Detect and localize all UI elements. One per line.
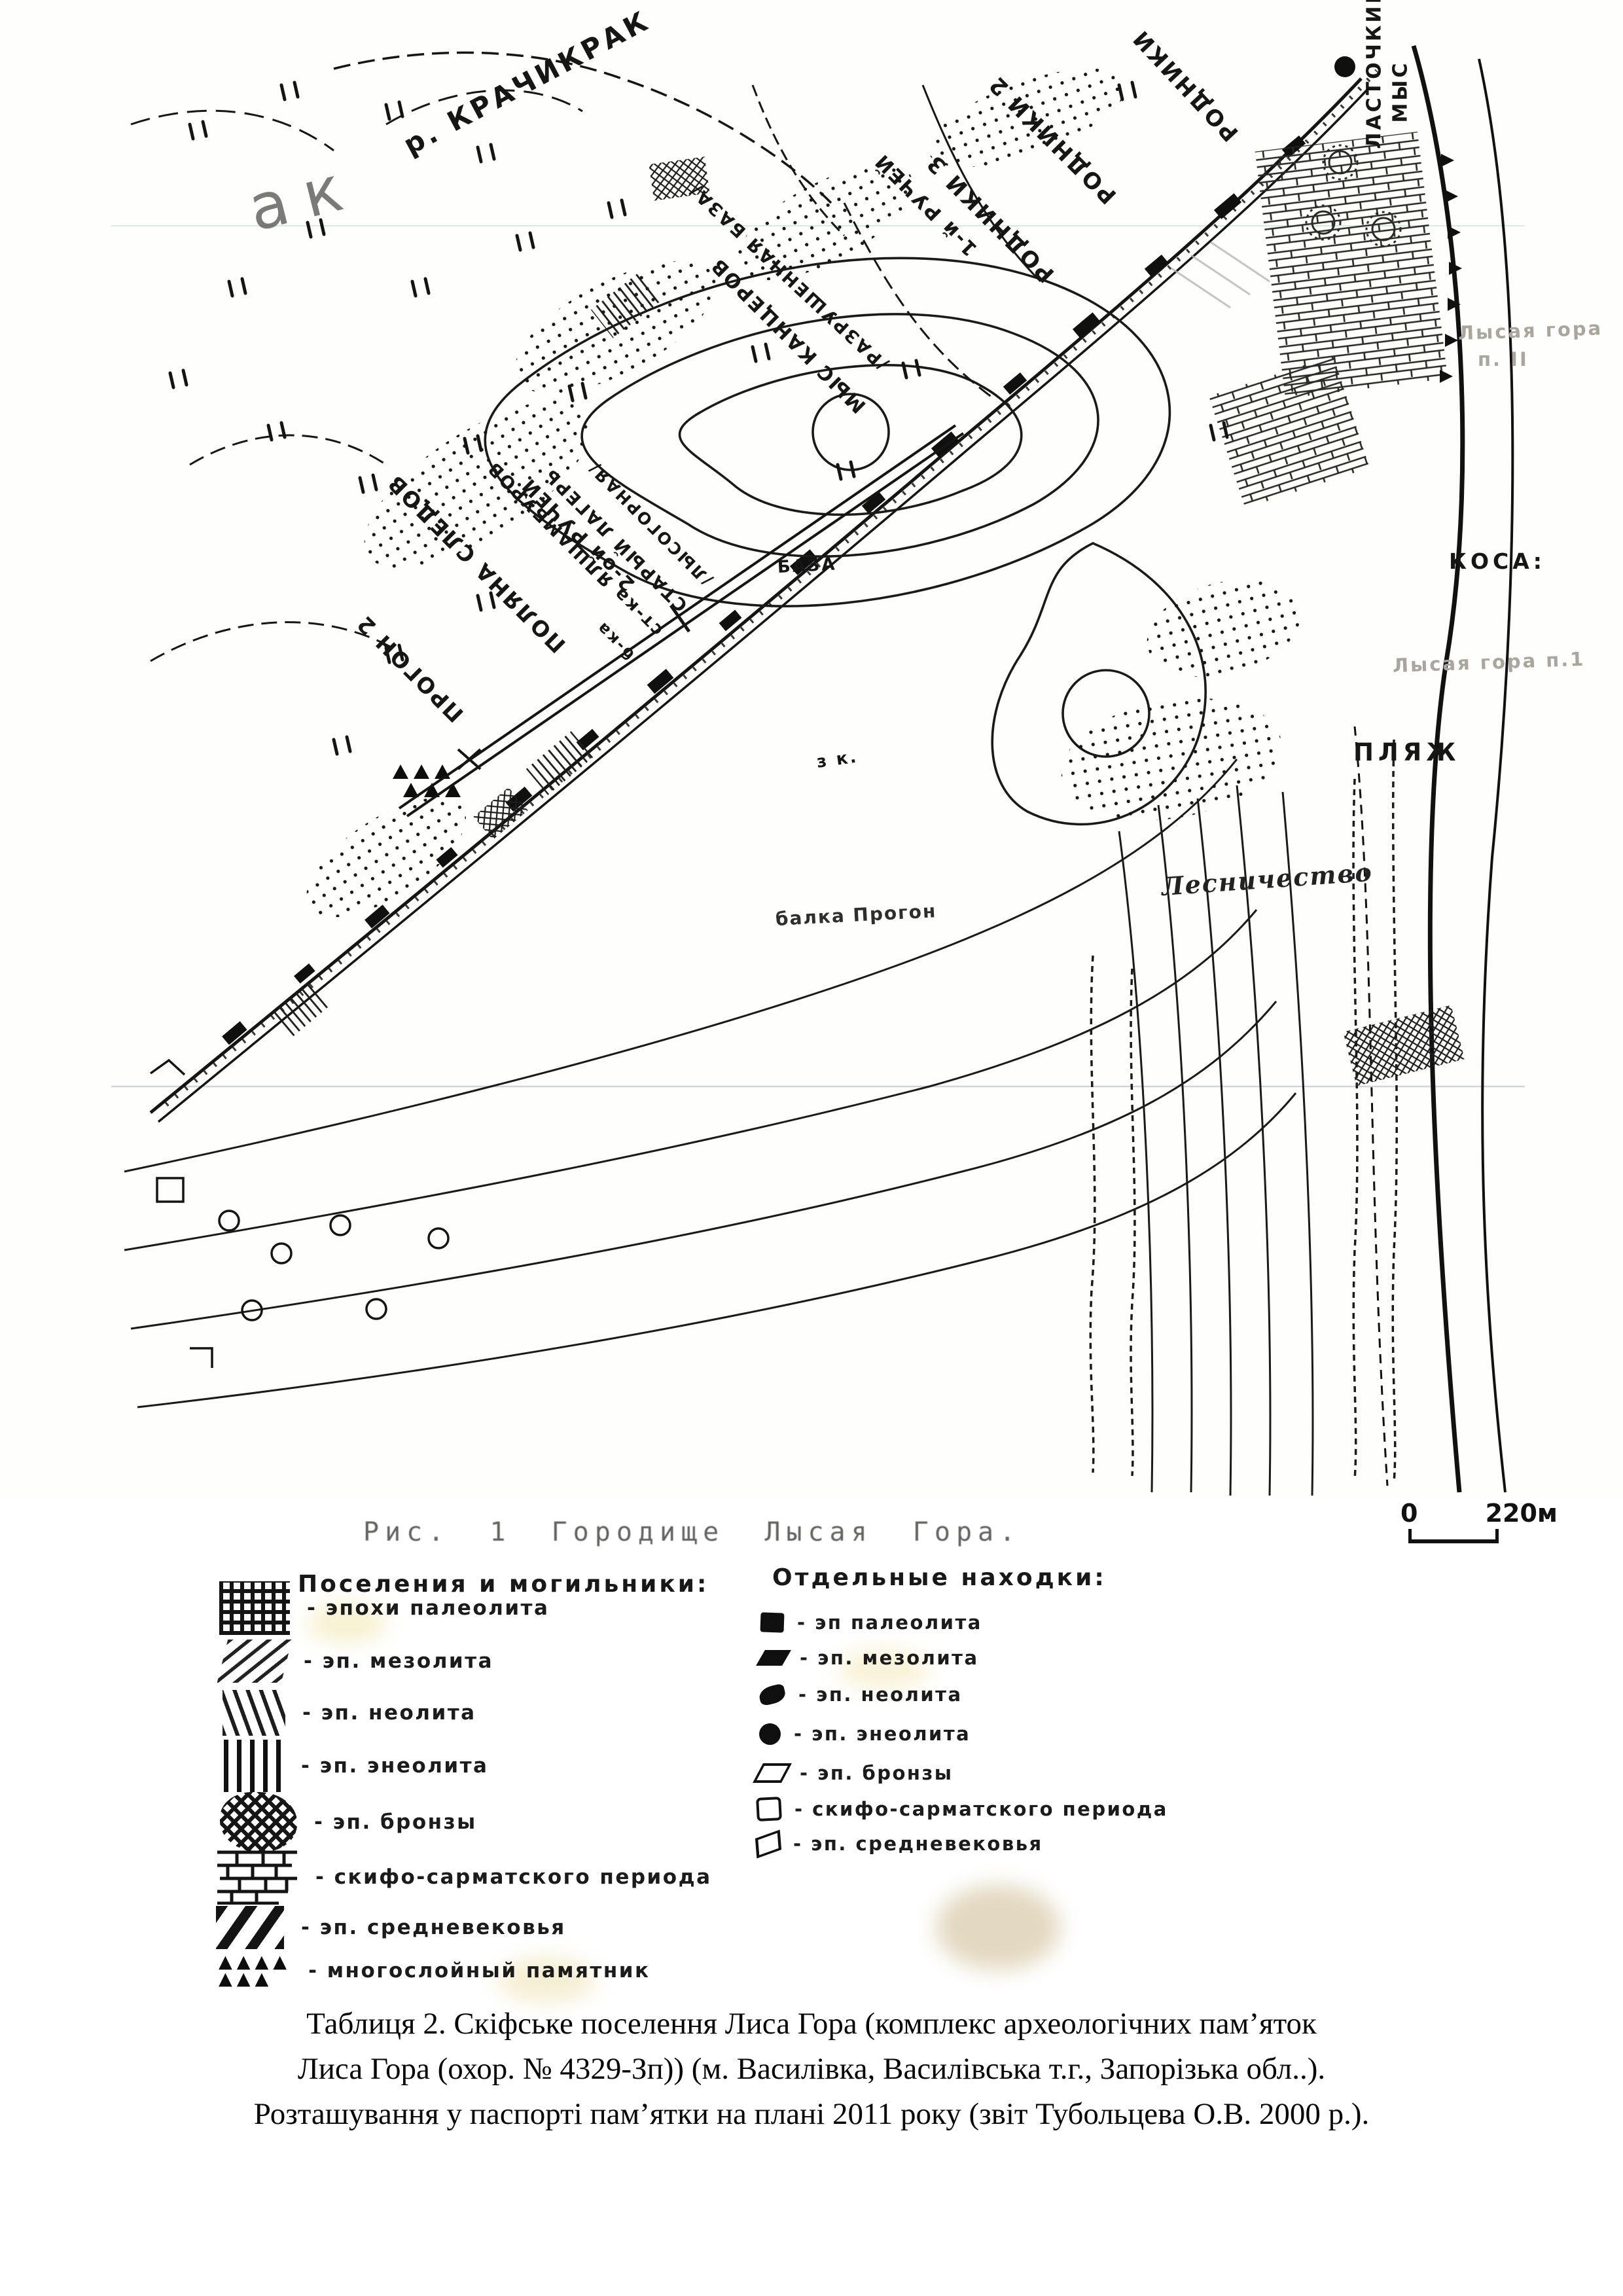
- scale-bracket: [1408, 1529, 1499, 1543]
- caption-line: Лиса Гора (охор. № 4329-Зп)) (м. Василів…: [59, 2047, 1564, 2092]
- map-label-lysaya-gora-p2-line2: п. II: [1478, 348, 1529, 370]
- brick-pattern-icon: [216, 1847, 298, 1907]
- legend-row: - скифо-сарматского периода: [757, 1797, 1168, 1821]
- triangles-icon: ▲▲▲▲▲▲▲: [219, 1954, 291, 1988]
- legend-item-label: - эп. мезолита: [800, 1647, 979, 1669]
- cross-hatch-icon: [220, 1792, 297, 1852]
- legend-item-label: - эп. мезолита: [304, 1649, 493, 1673]
- map-label-mys: МЫС: [1389, 61, 1412, 123]
- filled-square-icon: [760, 1612, 784, 1632]
- legend-item-label: - многослойный памятник: [308, 1959, 651, 1982]
- legend-row: - эп. бронзы: [758, 1762, 954, 1784]
- legend-row: - эп. неолита: [759, 1683, 963, 1706]
- legend-item-label: - эп. неолита: [302, 1701, 476, 1725]
- figure-caption: Таблиця 2. Скіфське поселення Лиса Гора …: [59, 2001, 1564, 2137]
- scale-end: 220м: [1486, 1499, 1558, 1528]
- legend-row: - эп. энеолита: [224, 1740, 488, 1792]
- grid-hatch-icon: [219, 1581, 290, 1635]
- triangle-cluster: [393, 764, 461, 797]
- open-parallelogram-icon: [753, 1763, 792, 1783]
- legend-item-label: - скифо-сарматского периода: [315, 1865, 712, 1889]
- pencil-strokes: [1171, 242, 1270, 308]
- scale-bar: 0 220м: [1400, 1499, 1558, 1543]
- archaeological-plan: р. КРАЧИКРАК РОДНИКИ 2 РОДНИКИ 3 РОДНИКИ…: [0, 0, 1623, 1499]
- legend-item-label: - эп. бронзы: [800, 1762, 954, 1784]
- legend-row: - эп палеолита: [760, 1611, 982, 1634]
- caption-line: Таблиця 2. Скіфське поселення Лиса Гора …: [59, 2001, 1564, 2047]
- limestone-outcrop: [1171, 132, 1462, 508]
- legend-item-label: - эп. энеолита: [301, 1754, 488, 1778]
- caption-line: Розташування у паспорті пам’ятки на план…: [59, 2092, 1564, 2137]
- filled-circle-icon: [759, 1723, 781, 1745]
- legend-row: - эп. мезолита: [760, 1647, 979, 1669]
- legend-row: - эп. средневековья: [757, 1833, 1043, 1855]
- vertical-hatch-icon: [224, 1740, 284, 1792]
- paper-stain: [936, 1885, 1060, 1970]
- legend-item-label: - эп. средневековья: [793, 1833, 1043, 1855]
- orchard-marks: [151, 1060, 448, 1368]
- scale-start: 0: [1400, 1499, 1418, 1528]
- filled-parallelogram-icon: [756, 1650, 791, 1666]
- open-tilted-square-icon: [755, 1829, 781, 1858]
- legend-row: - эпохи палеолита: [219, 1581, 549, 1635]
- diagonal-hatch-icon: [217, 1640, 292, 1683]
- legend-finds-header: Отдельные находки:: [772, 1564, 1107, 1591]
- legend-item-label: - эп. средневековья: [301, 1916, 566, 1939]
- legend-row: ▲▲▲▲▲▲▲ - многослойный памятник: [219, 1954, 651, 1988]
- legend-item-label: - эп. бронзы: [314, 1810, 477, 1834]
- legend-row: - скифо-сарматского периода: [216, 1847, 712, 1907]
- legend-row: - эп. средневековья: [216, 1906, 566, 1949]
- legend-item-label: - эп. энеолита: [794, 1723, 971, 1745]
- map-label-plyazh: ПЛЯЖ: [1353, 738, 1460, 766]
- legend-row: - эп. энеолита: [759, 1723, 971, 1745]
- map-label-kosa: КОСА:: [1449, 548, 1546, 574]
- scanned-page: р. КРАЧИКРАК РОДНИКИ 2 РОДНИКИ 3 РОДНИКИ…: [0, 0, 1623, 2296]
- filled-blob-icon: [757, 1683, 787, 1706]
- steep-hatch-icon: [223, 1690, 285, 1736]
- open-square-icon: [756, 1797, 782, 1821]
- slope-contours: [124, 759, 1313, 1496]
- legend-row: - эп. бронзы: [220, 1792, 477, 1852]
- legend-row: - эп. неолита: [223, 1690, 476, 1736]
- map-label-lysaya-gora-p2-line1: Лысая гора: [1457, 317, 1603, 344]
- legend-item-label: - эпохи палеолита: [307, 1596, 549, 1620]
- legend-row: - эп. мезолита: [223, 1640, 493, 1683]
- figure-title: Рис. 1 Городище Лысая Гора.: [363, 1517, 1021, 1547]
- legend-item-label: - эп палеолита: [797, 1611, 982, 1634]
- map-label-baza: БАЗА: [777, 554, 837, 577]
- legend-item-label: - скифо-сарматского периода: [794, 1798, 1168, 1820]
- bold-diagonal-icon: [216, 1906, 284, 1949]
- legend-item-label: - эп. неолита: [798, 1683, 963, 1706]
- map-label-lastochkin: ЛАСТОЧКИН: [1363, 0, 1386, 149]
